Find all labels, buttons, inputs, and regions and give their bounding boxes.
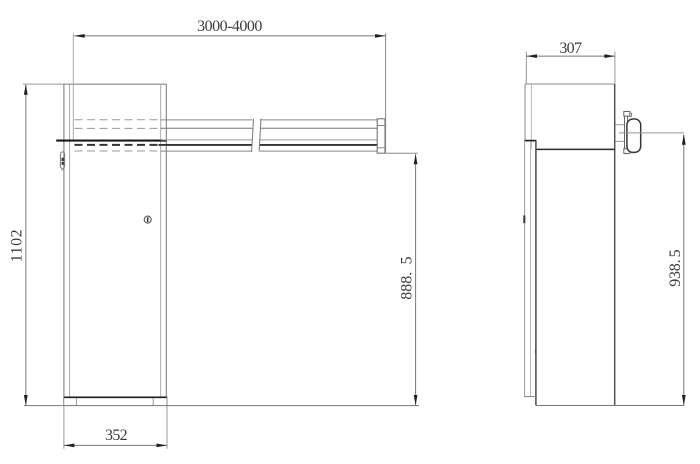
svg-text:1102: 1102 — [9, 229, 26, 262]
svg-text:888. 5: 888. 5 — [399, 256, 416, 299]
svg-text:3000-4000: 3000-4000 — [197, 18, 262, 35]
svg-text:938.5: 938.5 — [667, 249, 684, 286]
svg-text:307: 307 — [559, 40, 582, 57]
svg-text:352: 352 — [105, 427, 128, 444]
